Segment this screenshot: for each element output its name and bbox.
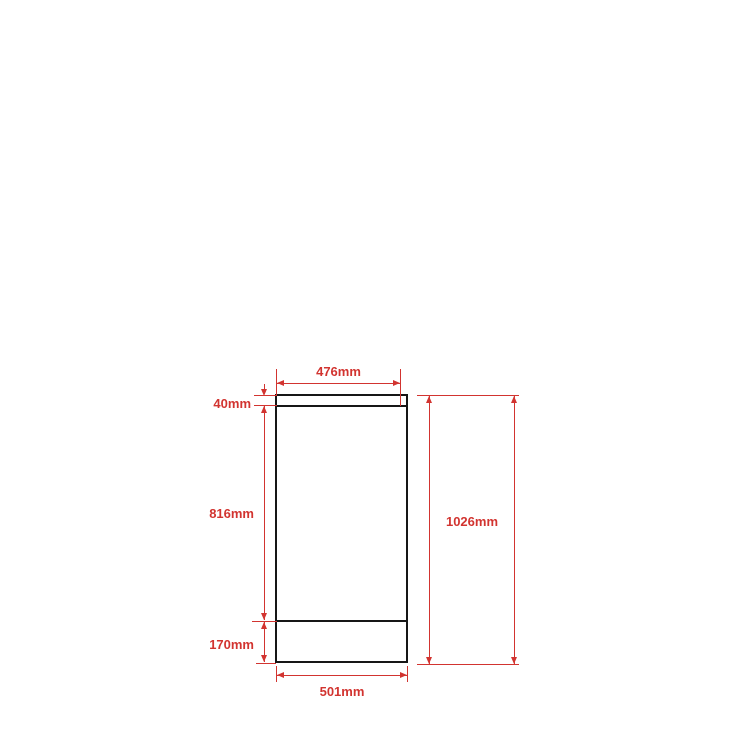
dim-top-height-arrowhead-down-icon [261,389,267,396]
dim-top-width-ext-line-right [400,369,401,406]
dim-bottom-width-arrowhead-left-icon [277,672,284,678]
dim-total-height-ext-line-top [417,395,519,396]
dim-middle-height-arrowhead-up-icon [261,406,267,413]
cabinet-top-panel-divider-line [277,405,406,407]
dim-total-height-line-inner [429,396,430,664]
dim-total-height-inner-arrowhead-up-icon [426,396,432,403]
dim-total-height-inner-arrowhead-down-icon [426,657,432,664]
dim-bottom-height-arrowhead-up-icon [261,622,267,629]
dim-bottom-width-ext-line-right [407,666,408,682]
dim-label-top-section-height: 40mm [191,397,251,410]
dim-total-height-outer-arrowhead-down-icon [511,657,517,664]
dim-middle-height-line [264,406,265,620]
dim-bottom-width-line [277,675,407,676]
dim-label-bottom-width: 501mm [277,685,407,698]
dim-total-height-ext-line-bottom [417,664,519,665]
cabinet-bottom-panel-divider-line [277,620,406,622]
dim-label-top-width: 476mm [277,365,400,378]
dim-top-width-arrowhead-right-icon [393,380,400,386]
dim-bottom-height-ext-line-lower [256,663,276,664]
dim-label-bottom-section-height: 170mm [181,638,254,651]
dimension-diagram-canvas: 476mm 40mm 816mm 170mm 1026mm [0,0,730,730]
dim-total-height-outer-arrowhead-up-icon [511,396,517,403]
dim-label-total-height: 1026mm [429,515,515,528]
dim-bottom-height-arrowhead-down-icon [261,655,267,662]
dim-top-width-arrowhead-left-icon [277,380,284,386]
dim-bottom-width-arrowhead-right-icon [400,672,407,678]
dim-total-height-line-outer [514,396,515,664]
dim-middle-height-arrowhead-down-icon [261,613,267,620]
cabinet-outline [275,394,408,663]
dim-top-width-line [277,383,400,384]
dim-label-middle-section-height: 816mm [181,507,254,520]
